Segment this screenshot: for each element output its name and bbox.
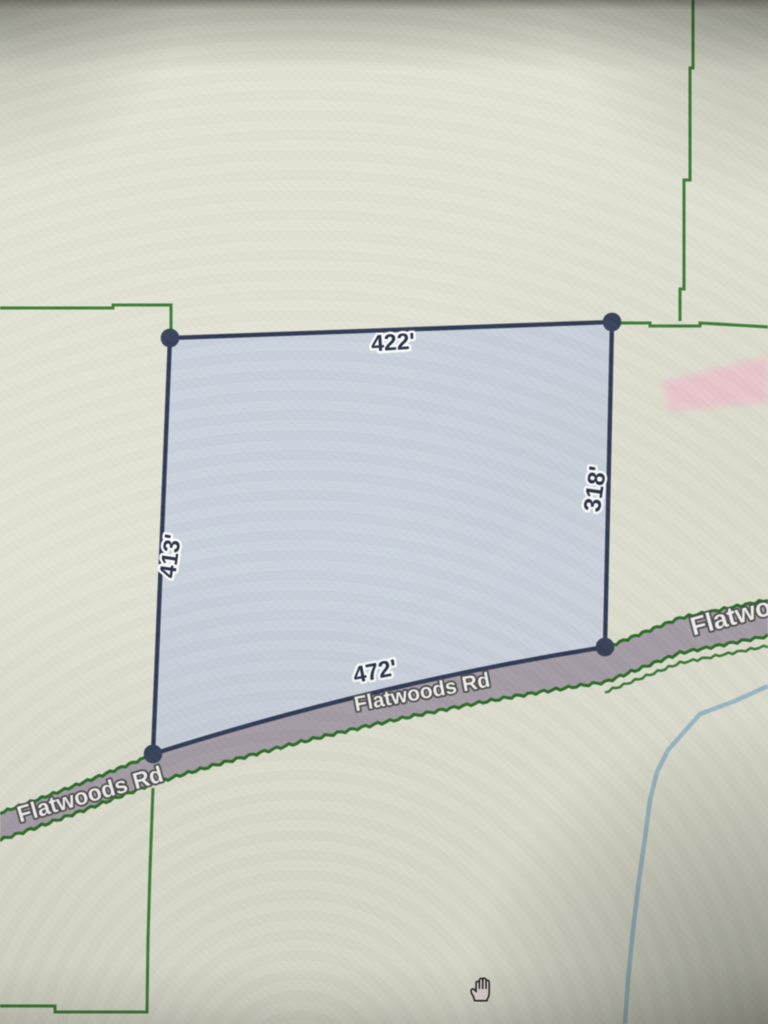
svg-text:422': 422' [370, 328, 415, 357]
